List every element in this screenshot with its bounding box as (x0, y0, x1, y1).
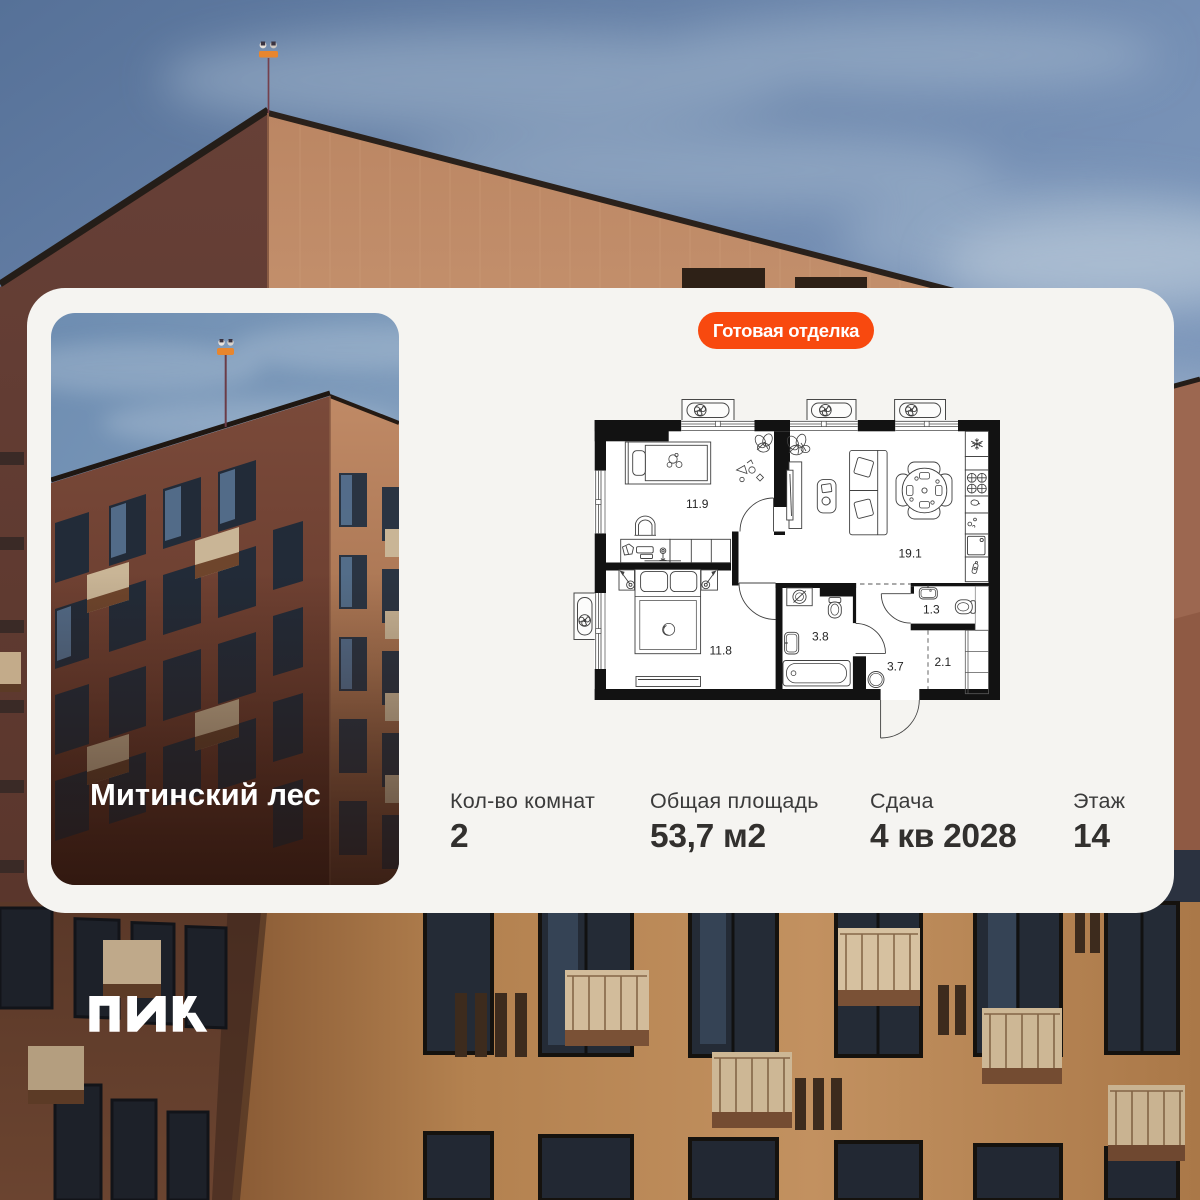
svg-text:19.1: 19.1 (899, 547, 923, 561)
svg-text:11.8: 11.8 (710, 644, 733, 658)
svg-text:11.9: 11.9 (686, 497, 709, 511)
svg-text:3.8: 3.8 (812, 630, 829, 644)
svg-text:Митинский лес: Митинский лес (90, 777, 321, 812)
svg-text:2.1: 2.1 (935, 655, 952, 669)
svg-text:1.3: 1.3 (923, 602, 940, 616)
svg-text:3.7: 3.7 (887, 660, 904, 674)
